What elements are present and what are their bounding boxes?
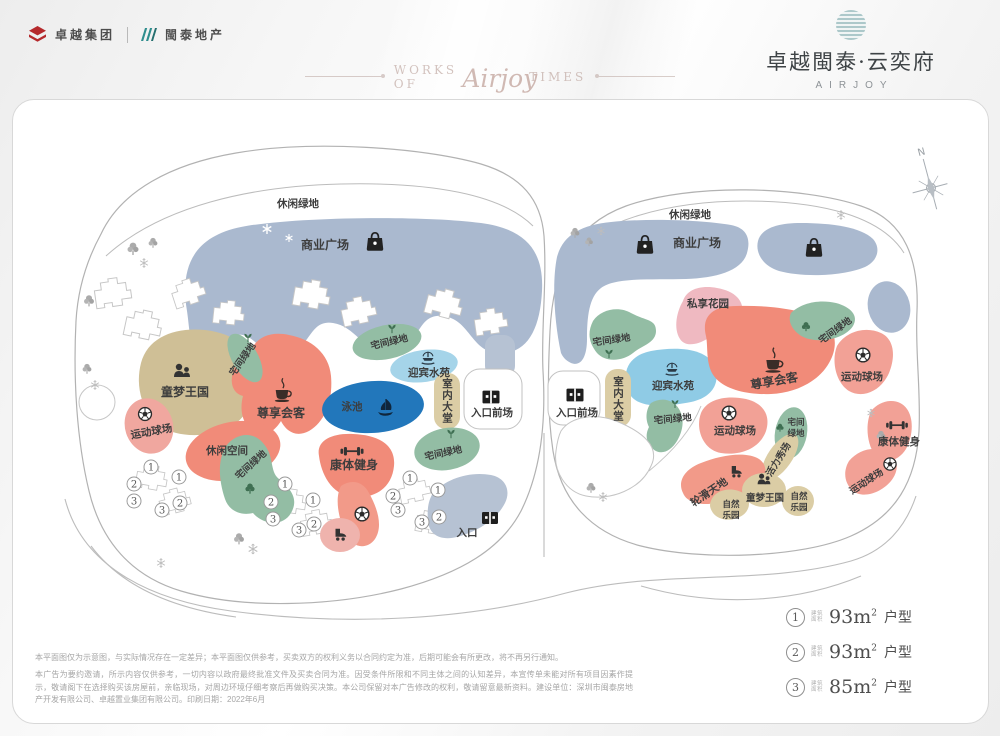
gate-icon [482, 512, 498, 524]
leisure-green-label: 休闲绿地 [276, 197, 319, 210]
leisure-space-label: 休闲空间 [205, 444, 248, 457]
nature-park-label: 自然 [790, 491, 808, 502]
svg-text:1: 1 [148, 463, 154, 474]
compass-north-label: N [917, 146, 927, 159]
watermark: WORKS OF Airjoy TIMES [305, 62, 675, 91]
left-plan: 休闲绿地 商业广场 童梦王国 运动球场 尊享会客 休闲空间 泳池 迎宾水苑 室内… [75, 146, 545, 603]
legend-item: 3 建筑面积 85m2 户型 [786, 676, 912, 698]
legend-unit-size: 93m2 [829, 606, 877, 628]
legend-item: 1 建筑面积 93m2 户型 [786, 606, 912, 628]
legend-number-badge: 2 [786, 643, 805, 662]
watermark-line-left [305, 76, 384, 77]
svg-text:3: 3 [296, 526, 302, 537]
commercial-plaza-label: 商业广场 [301, 237, 349, 252]
soccer-ball-icon [722, 406, 736, 420]
soccer-ball-icon [856, 348, 870, 362]
legend-unit-suffix: 户型 [884, 642, 912, 662]
compass: N [902, 143, 953, 214]
legend-area-caption: 建筑面积 [811, 646, 823, 658]
fitness-label: 康体健身 [878, 435, 920, 448]
disclaimer-line-2: 本广告为要约邀请，所示内容仅供参考，一切内容以政府最终批准文件及买卖合同为准。因… [35, 669, 633, 707]
private-garden-label: 私享花园 [686, 297, 729, 310]
legend-item: 2 建筑面积 93m2 户型 [786, 641, 912, 663]
logo-divider [127, 27, 128, 43]
nature-park-label: 自然 [722, 499, 740, 510]
white-road-blob [556, 417, 654, 497]
leisure-green-label: 休闲绿地 [668, 208, 711, 221]
soccer-ball-icon [139, 408, 152, 421]
sports-court-label: 运动球场 [841, 370, 883, 383]
commercial-fragment [862, 276, 916, 337]
water-garden-area [626, 349, 717, 406]
residential-green-label: 宅间 [787, 417, 804, 428]
entrance-label: 入口 [457, 527, 478, 539]
group-logo-text: 卓越集团 [55, 26, 115, 43]
legend-area-caption: 建筑面积 [811, 611, 823, 623]
disclaimer-block: 本平面图仅为示意图，与实际情况存在一定差异；本平面图仅供参考，买卖双方的权利义务… [35, 652, 633, 711]
legend-unit-suffix: 户型 [884, 607, 912, 627]
svg-text:2: 2 [311, 520, 317, 531]
svg-text:1: 1 [435, 486, 441, 497]
indoor-lobby-label: 室内大堂 [441, 377, 453, 424]
svg-text:3: 3 [419, 518, 425, 529]
legend-number-badge: 3 [786, 678, 805, 697]
brand-title: 卓越閩泰·云奕府 [766, 46, 936, 76]
svg-text:1: 1 [310, 496, 316, 507]
brand-block: 卓越閩泰·云奕府 AIRJOY [736, 10, 966, 91]
svg-text:1: 1 [282, 480, 288, 491]
commercial-plaza-label: 商业广场 [673, 235, 721, 250]
entrance-forecourt-label: 入口前场 [556, 406, 598, 419]
soccer-ball-icon [884, 458, 896, 470]
nature-park-label: 乐园 [722, 510, 739, 521]
watermark-line-right [596, 76, 675, 77]
fitness-label: 康体健身 [330, 457, 378, 472]
nature-park-label: 乐园 [790, 502, 807, 513]
disclaimer-line-1: 本平面图仅为示意图，与实际情况存在一定差异；本平面图仅供参考，买卖双方的权利义务… [35, 652, 633, 665]
header-logos: 卓越集团 閩泰地产 [28, 26, 225, 43]
indoor-lobby-label: 室内大堂 [612, 375, 624, 422]
svg-text:3: 3 [270, 515, 276, 526]
pool-label: 泳池 [342, 400, 363, 413]
unit-legend: 1 建筑面积 93m2 户型 2 建筑面积 93m2 户型 3 建筑面积 85m… [786, 606, 912, 698]
svg-text:2: 2 [436, 513, 442, 524]
zhuoyue-logo-icon [28, 26, 47, 43]
svg-text:2: 2 [390, 492, 396, 503]
svg-text:2: 2 [131, 480, 137, 491]
svg-text:1: 1 [176, 473, 182, 484]
svg-text:1: 1 [407, 474, 413, 485]
svg-text:2: 2 [268, 498, 274, 509]
legend-number-badge: 1 [786, 608, 805, 627]
brand-circle-logo [836, 10, 866, 40]
mintai-logo-icon [140, 27, 157, 42]
right-plan: 休闲绿地 商业广场 私享花园 宅间绿地 迎宾水苑 室内大堂 入口前场 尊享会客 … [548, 190, 920, 555]
legend-unit-size: 93m2 [829, 641, 877, 663]
legend-unit-size: 85m2 [829, 676, 877, 698]
water-garden-label: 迎宾水苑 [652, 379, 694, 392]
kids-kingdom-label: 童梦王国 [161, 384, 209, 399]
gate-icon [567, 389, 584, 402]
pool-area [320, 378, 425, 437]
soccer-ball-icon [355, 507, 369, 521]
kids-kingdom-label: 童梦王国 [746, 492, 784, 504]
vip-lounge-label: 尊享会客 [257, 405, 306, 420]
brand-subtitle: AIRJOY [808, 80, 893, 91]
watermark-suffix: TIMES [529, 70, 586, 84]
svg-text:3: 3 [131, 497, 137, 508]
svg-text:2: 2 [177, 499, 183, 510]
entrance-forecourt-label: 入口前场 [471, 406, 513, 419]
svg-text:3: 3 [159, 506, 165, 517]
residential-green-label: 绿地 [787, 428, 805, 439]
svg-text:3: 3 [395, 506, 401, 517]
legend-unit-suffix: 户型 [884, 677, 912, 697]
gate-icon [483, 391, 500, 404]
sports-court-label: 运动球场 [714, 424, 756, 437]
partner-logo-text: 閩泰地产 [165, 26, 225, 43]
watermark-prefix: WORKS OF [394, 63, 471, 91]
legend-area-caption: 建筑面积 [811, 681, 823, 693]
watermark-script: Airjoy [462, 64, 537, 93]
